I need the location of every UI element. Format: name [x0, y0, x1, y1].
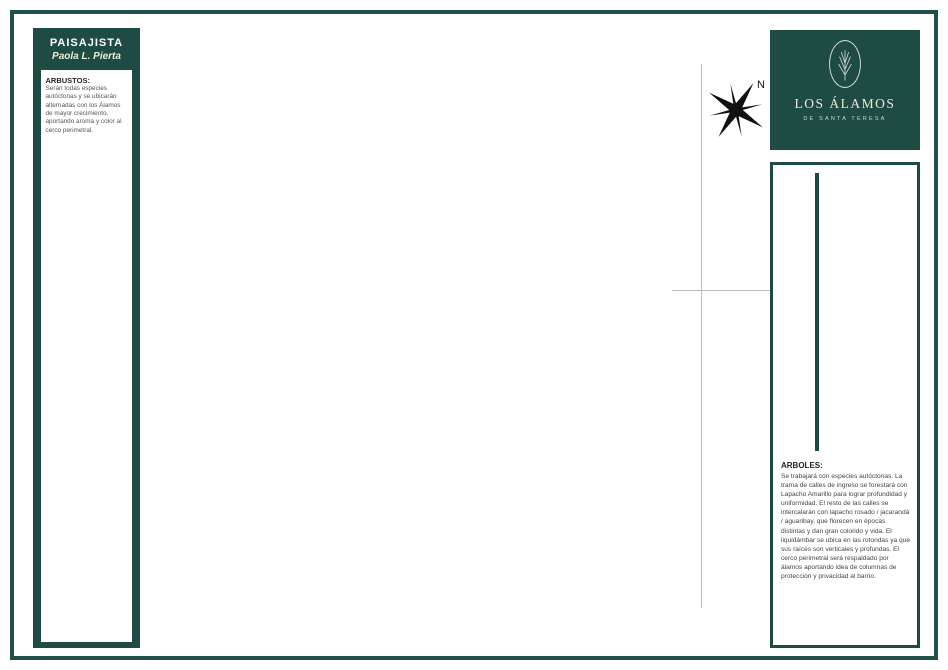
east-road-line [672, 290, 772, 291]
project-name: LOS ÁLAMOS [795, 96, 896, 112]
arbustos-note: ARBUSTOS: Serán todas especies autóctona… [46, 76, 128, 135]
landscaper-panel: PAISAJISTA Paola L. Pierta ARBUSTOS: Ser… [33, 28, 140, 648]
arboles-note: ARBOLES: Se trabajará con especies autóc… [781, 461, 911, 581]
poplar-logo-icon [829, 40, 861, 88]
arbustos-heading: ARBUSTOS: [46, 76, 128, 85]
arboles-text: Se trabajará con especies autóctonas. La… [781, 472, 911, 581]
project-subname: DE SANTA TERESA [803, 116, 886, 122]
compass-rose-icon: N [700, 74, 772, 146]
plan-page: 1/2 Calle Laprida (no librada al uso Púb… [0, 0, 948, 670]
project-logo: LOS ÁLAMOS DE SANTA TERESA [770, 30, 920, 150]
tree-legend: ARBOLES: Se trabajará con especies autóc… [770, 162, 920, 648]
shrub-legend: ARBUSTOS: Serán todas especies autóctona… [41, 70, 132, 642]
landscaper-title: PAISAJISTA [33, 37, 140, 49]
compass-north-label: N [757, 79, 765, 91]
arboles-heading: ARBOLES: [781, 461, 911, 470]
site-plan-map: 1/2 Calle Laprida (no librada al uso Púb… [140, 14, 780, 656]
arbustos-text: Serán todas especies autóctonas y se ubi… [46, 85, 128, 135]
landscaper-name: Paola L. Pierta [33, 51, 140, 62]
legend-divider-bar [815, 173, 819, 451]
